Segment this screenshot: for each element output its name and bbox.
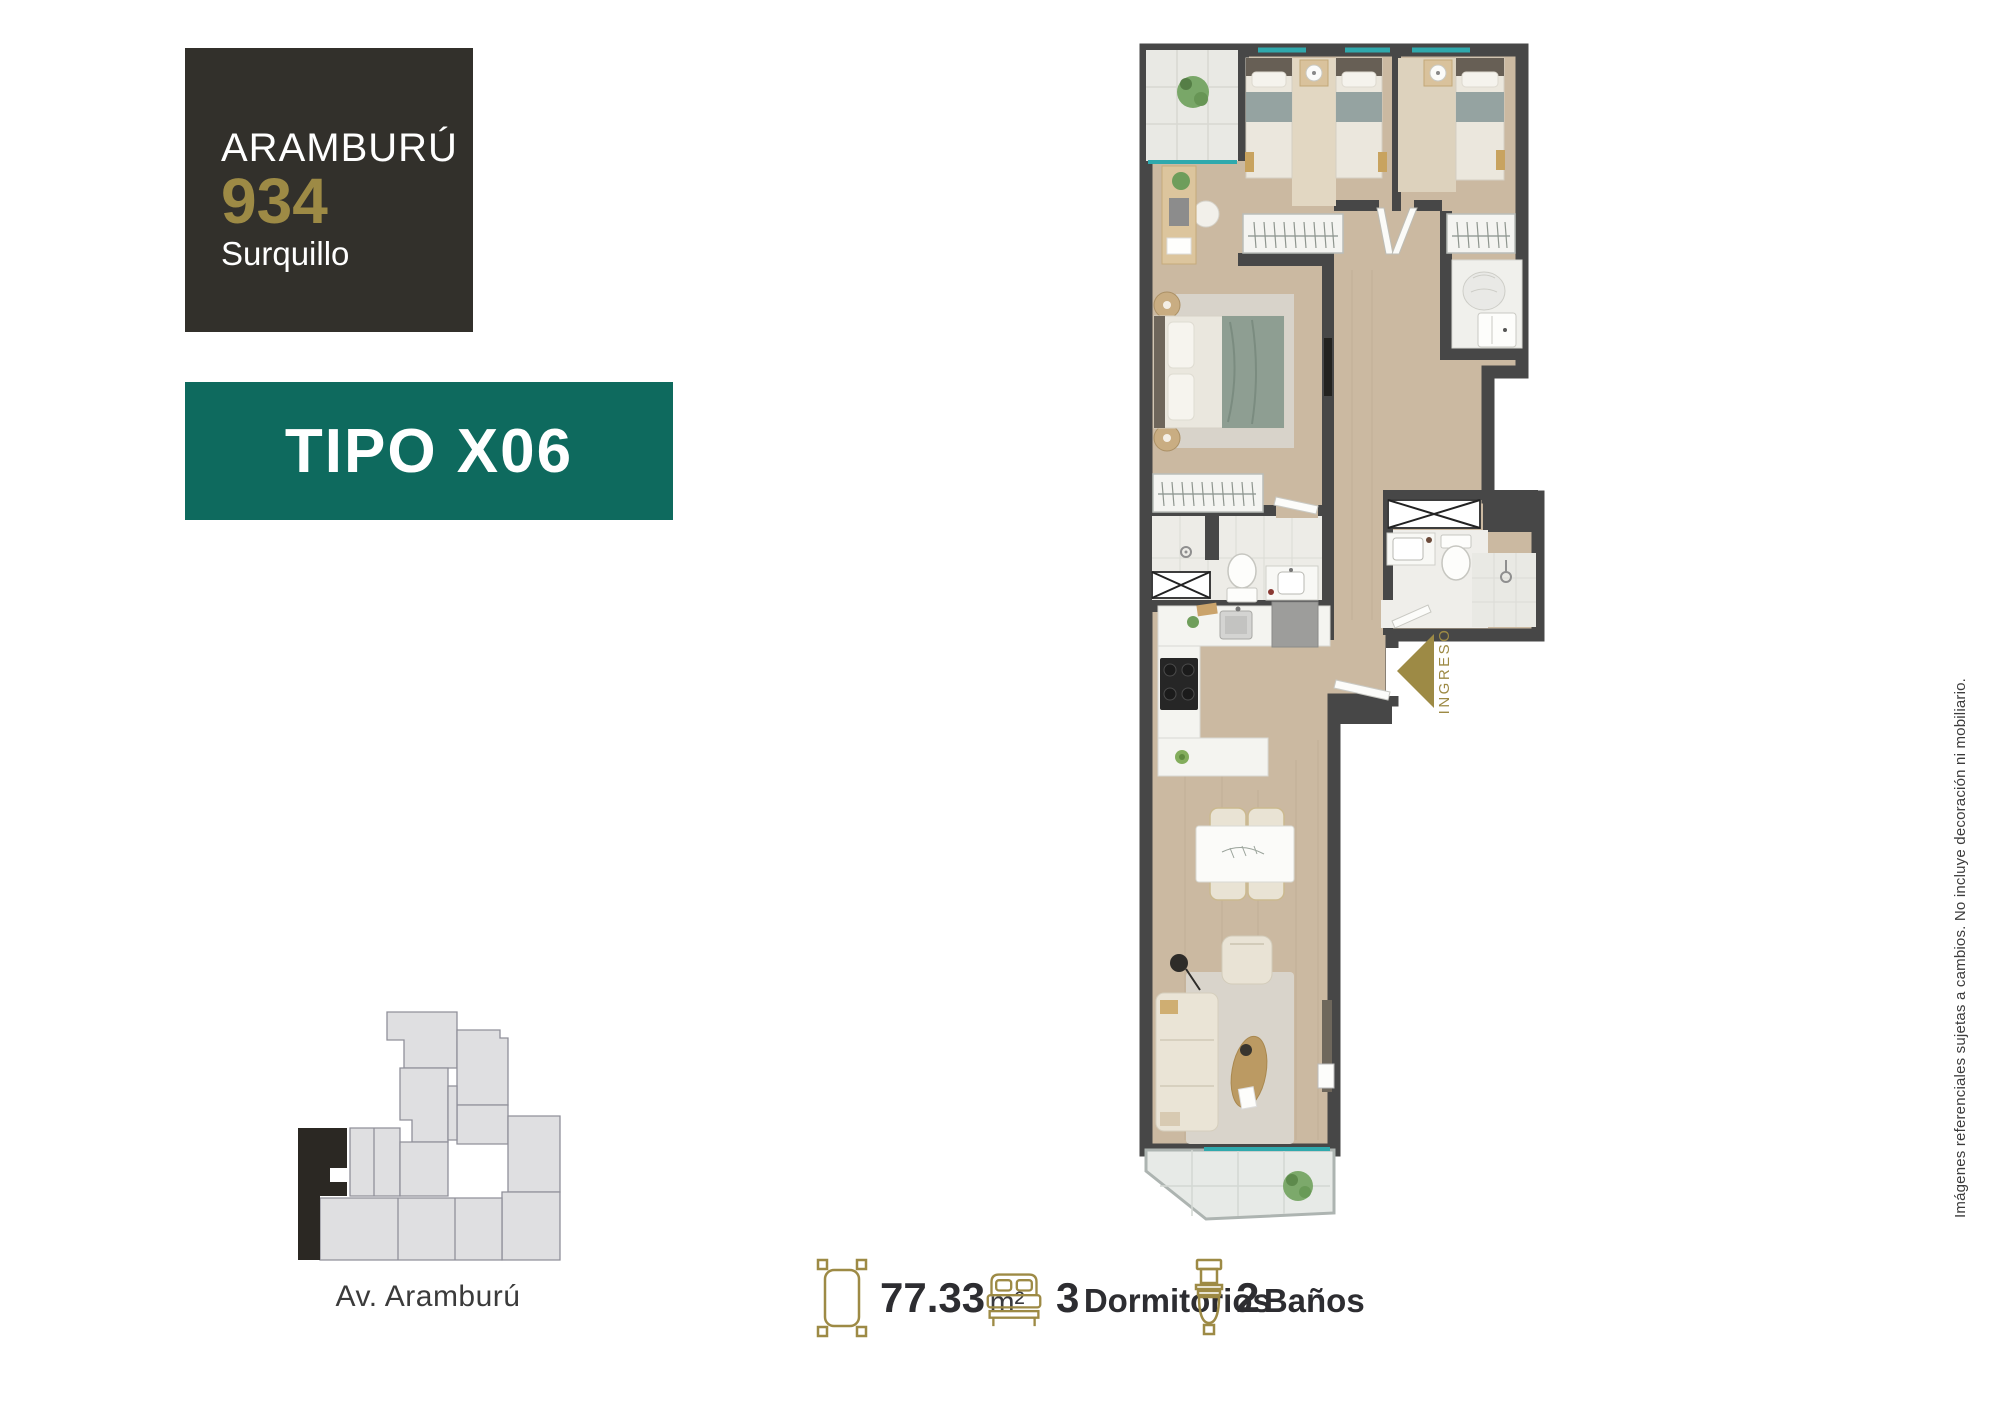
towel-roll <box>1463 272 1505 310</box>
unit-type-label: TIPO X06 <box>285 416 573 487</box>
double-bed <box>1154 316 1284 428</box>
brand-box: ARAMBURÚ 934 Surquillo <box>185 48 473 332</box>
sink <box>1278 572 1304 594</box>
toilet <box>1228 554 1256 588</box>
laundry-area <box>1452 260 1522 348</box>
bedrooms-value: 3 <box>1056 1274 1079 1321</box>
unit-type-banner: TIPO X06 <box>185 382 673 520</box>
floor-plan: INGRESO <box>1128 38 1552 1230</box>
toilet <box>1442 546 1470 580</box>
twin-bed <box>1336 58 1387 178</box>
desk-chair <box>1193 201 1219 227</box>
area-value: 77.33 <box>880 1274 985 1321</box>
dining-area <box>1196 808 1294 900</box>
stat-bathrooms: 2 Baños <box>1194 1252 1365 1344</box>
laptop <box>1169 198 1189 226</box>
washer-icon <box>1478 313 1516 347</box>
bed-icon <box>984 1265 1044 1331</box>
toilet-icon <box>1194 1258 1224 1338</box>
twin-bed <box>1456 58 1505 180</box>
linen-closet <box>1152 572 1210 598</box>
area-icon <box>816 1254 868 1342</box>
sofa <box>1156 993 1218 1131</box>
sink <box>1393 538 1423 560</box>
ingreso-label: INGRESO <box>1436 628 1453 715</box>
twin-bed <box>1245 58 1292 178</box>
terrace-top <box>1146 50 1238 162</box>
stove <box>1160 658 1198 710</box>
brand-name: ARAMBURÚ <box>221 126 473 170</box>
bathrooms-value: 2 <box>1236 1274 1259 1321</box>
bathrooms-label: Baños <box>1264 1282 1365 1319</box>
site-map <box>290 1000 566 1268</box>
hall-closet <box>1388 500 1480 528</box>
ingreso-arrow-icon <box>1397 634 1434 708</box>
site-map-units <box>320 1012 560 1260</box>
floor-lamp-icon <box>1170 954 1188 972</box>
brand-number: 934 <box>221 170 473 232</box>
plant-icon <box>1172 172 1190 190</box>
terrace-bottom <box>1146 1149 1334 1219</box>
fridge <box>1272 602 1318 647</box>
closet-bedroom-1 <box>1243 214 1343 253</box>
tv-icon <box>1324 338 1332 396</box>
brand-district: Surquillo <box>221 232 473 276</box>
closet-bedroom-2 <box>1447 214 1515 253</box>
disclaimer-text: Imágenes referenciales sujetas a cambios… <box>1952 678 1969 1218</box>
dresser-closet <box>1153 474 1263 512</box>
street-label: Av. Aramburú <box>290 1280 566 1314</box>
